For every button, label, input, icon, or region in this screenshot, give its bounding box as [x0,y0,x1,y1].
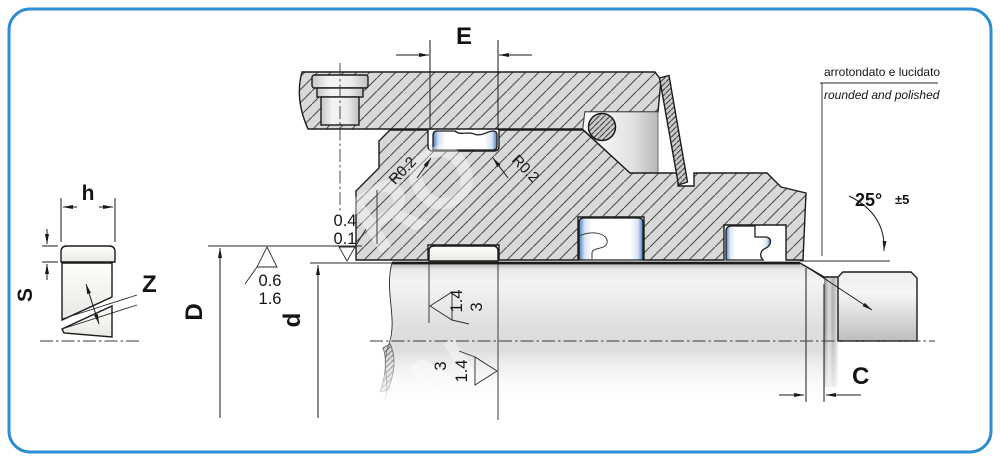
dim-d-label: d [279,313,306,328]
note-italian: arrotondato e lucidato [824,65,940,79]
finish-shaft-upper-far: 3 [468,302,486,311]
rod-end-stub [838,272,917,341]
dim-D: D [181,248,220,418]
retaining-strip [660,76,688,186]
o-ring-section [589,114,616,141]
finish-bore-line2: 1.6 [259,290,282,308]
dim-S-label: S [14,288,37,302]
ring-detail: Z h S [14,182,157,337]
dim-E-label: E [456,23,472,50]
angle-value: 25° [855,190,882,210]
finish-shaft-upper-near: 1.4 [448,290,466,313]
seal-installation-drawing: RO N E R0.2 R0.2 0.6 1.6 0.4 0.1 D d [0,0,1000,461]
angle-tolerance: ±5 [895,192,909,207]
rod-seal-left [579,218,643,260]
guide-ring-section [429,246,498,261]
ring-cap [61,246,115,262]
finish-groove-bore: 0.6 1.6 [208,246,362,308]
dim-D-label: D [181,303,208,320]
rod-seal-right [726,226,771,260]
dim-C-label: C [852,363,869,390]
finish-shaft-lower-near: 1.4 [453,360,471,383]
finish-shaft-lower-far: 3 [432,361,450,370]
dim-d: d [279,265,318,418]
finish-clearance-line1: 0.4 [334,212,357,230]
drawing-canvas: RO N E R0.2 R0.2 0.6 1.6 0.4 0.1 D d [0,0,1000,461]
finish-clearance-line2: 0.1 [334,230,357,248]
dim-h-label: h [82,182,95,205]
note-english: rounded and polished [824,88,940,102]
dim-Z-label: Z [142,271,157,298]
finish-bore-line1: 0.6 [259,272,282,290]
